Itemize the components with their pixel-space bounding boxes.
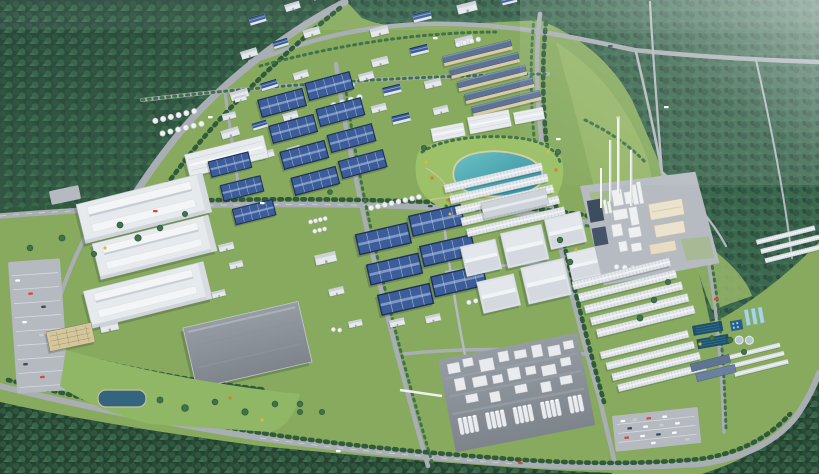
top-atmosphere [0, 0, 819, 30]
parking-lot-west [8, 258, 69, 393]
aerial-render-stage [0, 0, 819, 474]
pale-basins [744, 307, 765, 326]
pond [98, 390, 146, 407]
industrial-park-aerial-render [0, 0, 819, 474]
